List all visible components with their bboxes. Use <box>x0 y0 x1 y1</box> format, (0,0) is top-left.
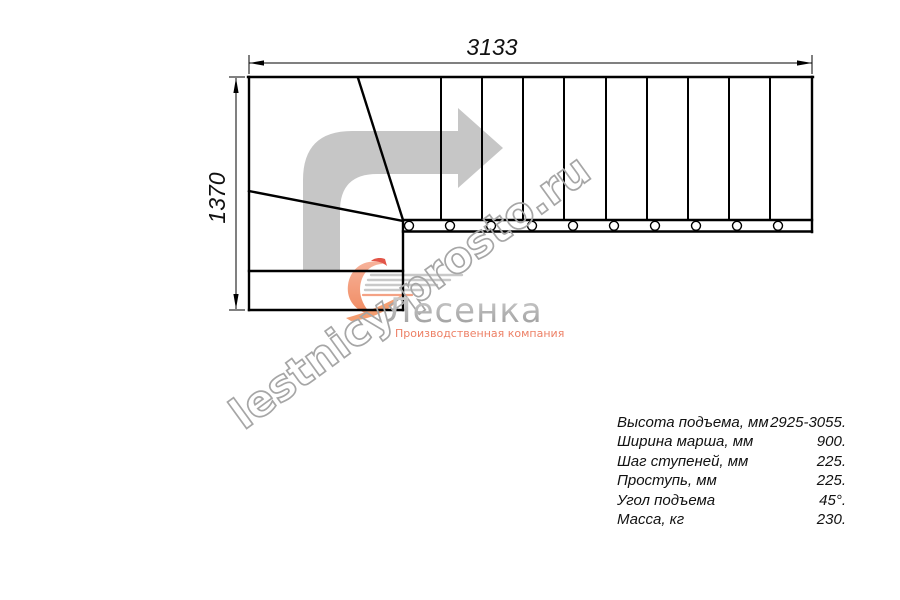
spec-value: 900. <box>817 432 846 451</box>
spec-label: Ширина марша, мм <box>617 432 753 451</box>
dimension-height-label: 1370 <box>204 148 228 248</box>
dimension-width-label: 3133 <box>437 34 547 61</box>
spec-value: 45°. <box>819 491 846 510</box>
spec-value: 230. <box>817 510 846 529</box>
spec-row: Масса, кг 230. <box>617 510 846 529</box>
spec-label: Шаг ступеней, мм <box>617 452 748 471</box>
company-logo: Лесенка Производственная компания <box>336 252 596 342</box>
dimension-height <box>229 77 245 310</box>
spec-row: Высота подъема, мм 2925-3055. <box>617 413 846 432</box>
spec-row: Угол подъема 45°. <box>617 491 846 510</box>
spec-label: Угол подъема <box>617 491 715 510</box>
spec-row: Ширина марша, мм 900. <box>617 432 846 451</box>
spec-row: Шаг ступеней, мм 225. <box>617 452 846 471</box>
spec-label: Проступь, мм <box>617 471 717 490</box>
spec-value: 2925-3055. <box>770 413 846 432</box>
logo-subtitle: Производственная компания <box>395 327 564 340</box>
spec-value: 225. <box>817 471 846 490</box>
logo-company-name: Лесенка <box>386 294 543 328</box>
spec-label: Высота подъема, мм <box>617 413 769 432</box>
spec-table: Высота подъема, мм 2925-3055. Ширина мар… <box>617 413 846 529</box>
stair-drawing-page: 3133 1370 lestnicy-prosto.ru Лесенка Про… <box>0 0 900 600</box>
spec-label: Масса, кг <box>617 510 684 529</box>
spec-value: 225. <box>817 452 846 471</box>
stringer-bolt-holes <box>405 221 783 230</box>
spec-row: Проступь, мм 225. <box>617 471 846 490</box>
